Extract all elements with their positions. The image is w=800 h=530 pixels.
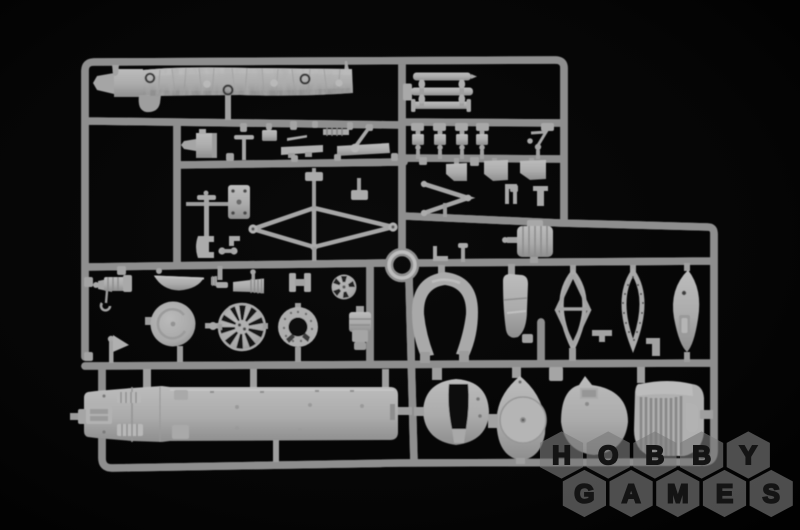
svg-text:O: O <box>598 440 618 470</box>
svg-text:E: E <box>716 479 733 509</box>
svg-text:S: S <box>763 479 780 509</box>
svg-text:A: A <box>622 479 641 509</box>
svg-text:H: H <box>552 440 571 470</box>
svg-text:Y: Y <box>740 440 757 470</box>
svg-text:M: M <box>667 479 689 509</box>
svg-text:B: B <box>646 440 665 470</box>
svg-text:G: G <box>574 479 594 509</box>
svg-text:B: B <box>692 440 711 470</box>
